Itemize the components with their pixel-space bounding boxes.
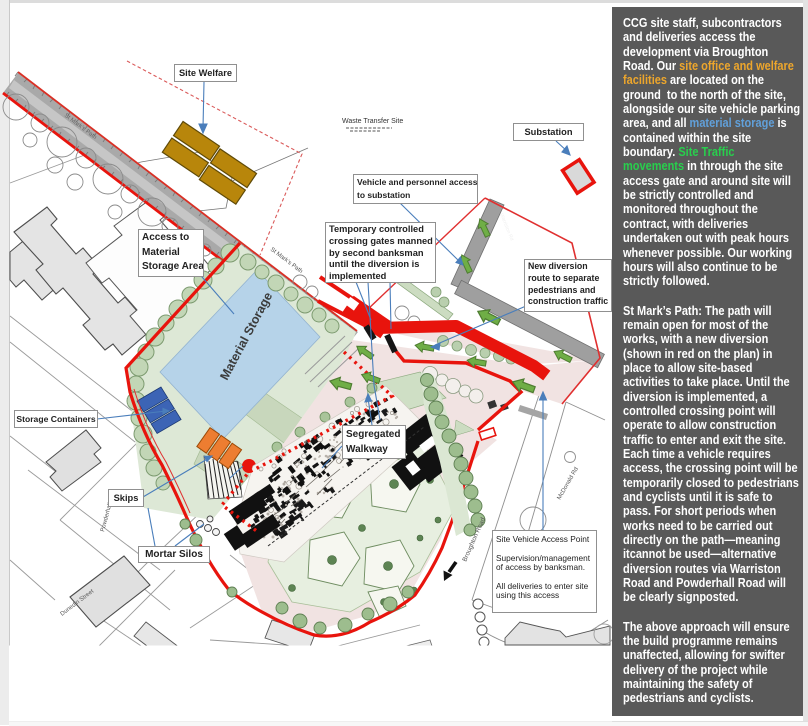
svg-text:Waste Transfer Site: Waste Transfer Site: [342, 118, 403, 125]
svg-text:Warriston Rd: Warriston Rd: [498, 213, 515, 242]
svg-text:McDonald Rd: McDonald Rd: [557, 467, 580, 501]
